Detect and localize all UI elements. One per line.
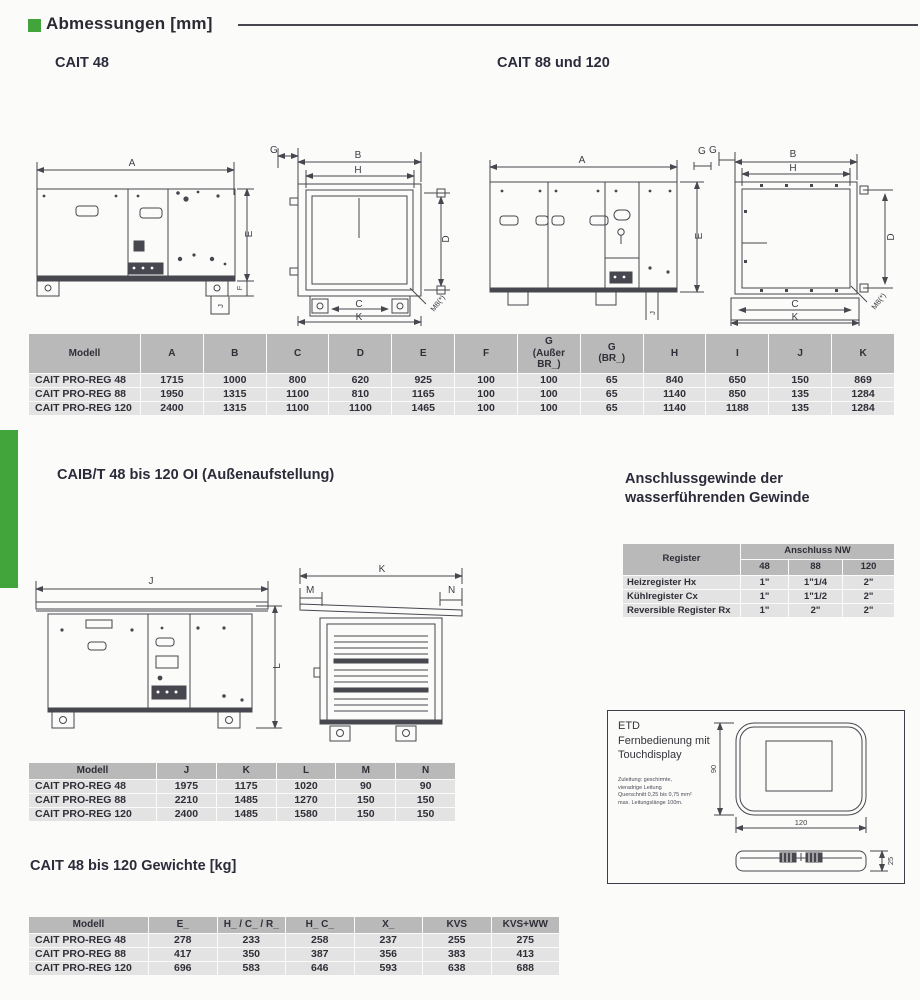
value-cell: 1465 — [392, 401, 455, 415]
value-cell: 2" — [843, 603, 895, 617]
column-header: E_ — [149, 917, 218, 934]
value-cell: 1715 — [141, 373, 204, 387]
gewinde-heading-line1: Anschlussgewinde der — [625, 470, 810, 489]
table-row: Heizregister Hx 1" 1"1/4 2" — [623, 575, 895, 589]
value-cell: 1140 — [643, 387, 706, 401]
value-cell: 1975 — [157, 779, 217, 793]
value-cell: 593 — [354, 961, 423, 975]
value-cell: 1" — [741, 589, 789, 603]
outdoor-dimensions-table: ModellJKLMNCAIT PRO-REG 4819751175102090… — [28, 762, 456, 822]
value-cell: 90 — [336, 779, 396, 793]
value-cell: 237 — [354, 933, 423, 947]
dim-label-m8: M8(*) — [428, 293, 447, 313]
dim-label-c: C — [791, 299, 798, 310]
value-cell: 1188 — [706, 401, 769, 415]
dim-label-m8: M8(*) — [869, 291, 888, 311]
dim-label-a: A — [579, 155, 586, 166]
model-cell: CAIT PRO-REG 88 — [29, 947, 149, 961]
value-cell: 100 — [517, 387, 580, 401]
table-row: CAIT PRO-REG 481975117510209090 — [29, 779, 456, 793]
value-cell: 2400 — [157, 807, 217, 821]
title-rule — [238, 24, 918, 26]
value-cell: 1100 — [266, 401, 329, 415]
value-cell: 100 — [455, 387, 518, 401]
value-cell: 1" — [741, 603, 789, 617]
column-header: E — [392, 334, 455, 374]
table-row: CAIT PRO-REG 481715100080062092510010065… — [29, 373, 895, 387]
table-row: CAIT PRO-REG 881950131511008101165100100… — [29, 387, 895, 401]
table-row: Reversible Register Rx 1" 2" 2" — [623, 603, 895, 617]
dimension-table: ModellABCDEFG (Außer BR_)G (BR_)HIJKCAIT… — [28, 333, 895, 416]
value-cell: 1580 — [276, 807, 336, 821]
model-cell: CAIT PRO-REG 120 — [29, 961, 149, 975]
value-cell: 278 — [149, 933, 218, 947]
etd-box: ETD Fernbedienung mit Touchdisplay Zulei… — [607, 710, 905, 884]
value-cell: 840 — [643, 373, 706, 387]
cait48-side-drawing: A E F J — [28, 143, 258, 325]
dim-label-l: L — [272, 663, 283, 669]
value-cell: 620 — [329, 373, 392, 387]
anschluss-nw-header: Anschluss NW — [741, 544, 895, 560]
section-bullet — [28, 19, 41, 32]
value-cell: 1100 — [329, 401, 392, 415]
column-header: J — [157, 763, 217, 780]
value-cell: 233 — [217, 933, 286, 947]
value-cell: 2400 — [141, 401, 204, 415]
dim-label-j: J — [216, 304, 225, 308]
value-cell: 150 — [396, 807, 456, 821]
value-cell: 2210 — [157, 793, 217, 807]
page-title: Abmessungen [mm] — [46, 14, 213, 34]
model-cell: CAIT PRO-REG 88 — [29, 793, 157, 807]
value-cell: 1284 — [832, 401, 895, 415]
value-cell: 65 — [580, 373, 643, 387]
value-cell: 135 — [769, 387, 832, 401]
column-header: H_ / C_ / R_ — [217, 917, 286, 934]
dim-label-c: C — [355, 299, 362, 310]
model-cell: CAIT PRO-REG 48 — [29, 779, 157, 793]
value-cell: 413 — [491, 947, 560, 961]
caibt-heading: CAIB/T 48 bis 120 OI (Außenaufstellung) — [57, 467, 334, 483]
header-row: ModellE_H_ / C_ / R_H_ C_X_KVSKVS+WW — [29, 917, 560, 934]
sidebar-accent-bar — [0, 430, 18, 588]
value-cell: 1140 — [643, 401, 706, 415]
dim-label-h: H — [789, 163, 796, 174]
value-cell: 1315 — [203, 387, 266, 401]
value-cell: 100 — [455, 373, 518, 387]
value-cell: 65 — [580, 387, 643, 401]
value-cell: 1020 — [276, 779, 336, 793]
table-row: CAIT PRO-REG 88221014851270150150 — [29, 793, 456, 807]
table-row: CAIT PRO-REG 120240013151100110014651001… — [29, 401, 895, 415]
cait88-side-drawing: A G E J — [478, 140, 713, 327]
column-header: Modell — [29, 334, 141, 374]
column-header: KVS — [423, 917, 492, 934]
header-row: ModellJKLMN — [29, 763, 456, 780]
etd-dim-height: 90 — [709, 765, 718, 773]
value-cell: 1485 — [216, 793, 276, 807]
column-header: I — [706, 334, 769, 374]
column-header: KVS+WW — [491, 917, 560, 934]
dim-label-a: A — [129, 158, 136, 169]
value-cell: 688 — [491, 961, 560, 975]
value-cell: 255 — [423, 933, 492, 947]
table-row: CAIT PRO-REG 120696583646593638688 — [29, 961, 560, 975]
value-cell: 1"1/2 — [789, 589, 843, 603]
dim-label-j: J — [149, 576, 154, 587]
value-cell: 100 — [517, 373, 580, 387]
column-header: C — [266, 334, 329, 374]
value-cell: 2" — [789, 603, 843, 617]
dim-label-b: B — [790, 149, 797, 160]
dim-label-e: E — [244, 230, 255, 237]
value-cell: 583 — [217, 961, 286, 975]
size-header-120: 120 — [843, 559, 895, 575]
value-cell: 1"1/4 — [789, 575, 843, 589]
register-label: Kühlregister Cx — [623, 589, 741, 603]
value-cell: 150 — [336, 793, 396, 807]
caibt-side-drawing: J L — [28, 570, 290, 742]
value-cell: 925 — [392, 373, 455, 387]
value-cell: 810 — [329, 387, 392, 401]
value-cell: 90 — [396, 779, 456, 793]
dim-label-g: G — [709, 145, 717, 156]
value-cell: 1270 — [276, 793, 336, 807]
table-row: CAIT PRO-REG 88417350387356383413 — [29, 947, 560, 961]
size-header-48: 48 — [741, 559, 789, 575]
cait88-heading: CAIT 88 und 120 — [497, 55, 610, 71]
table-row: CAIT PRO-REG 120240014851580150150 — [29, 807, 456, 821]
value-cell: 100 — [517, 401, 580, 415]
register-table: Register Anschluss NW 48 88 120 Heizregi… — [622, 543, 895, 618]
value-cell: 850 — [706, 387, 769, 401]
dim-label-e: E — [694, 232, 705, 239]
register-label: Heizregister Hx — [623, 575, 741, 589]
cait88-front-drawing: G B H D C K M8(*) — [705, 140, 905, 327]
value-cell: 150 — [396, 793, 456, 807]
column-header: N — [396, 763, 456, 780]
dim-label-k: K — [792, 312, 799, 323]
cait48-front-drawing: G B H D C K M8(*) — [258, 140, 463, 327]
dim-label-f: F — [235, 285, 244, 290]
etd-drawing: 90 120 25 — [608, 711, 904, 882]
model-cell: CAIT PRO-REG 48 — [29, 933, 149, 947]
dim-label-g: G — [270, 145, 278, 156]
column-header: B — [203, 334, 266, 374]
value-cell: 1100 — [266, 387, 329, 401]
column-header: M — [336, 763, 396, 780]
column-header: G (Außer BR_) — [517, 334, 580, 374]
model-cell: CAIT PRO-REG 120 — [29, 401, 141, 415]
value-cell: 1" — [741, 575, 789, 589]
value-cell: 387 — [286, 947, 355, 961]
column-header: G (BR_) — [580, 334, 643, 374]
value-cell: 65 — [580, 401, 643, 415]
column-header: Modell — [29, 917, 149, 934]
value-cell: 869 — [832, 373, 895, 387]
dim-label-h: H — [354, 165, 361, 176]
table-row: Kühlregister Cx 1" 1"1/2 2" — [623, 589, 895, 603]
value-cell: 258 — [286, 933, 355, 947]
dim-label-d: D — [441, 235, 452, 242]
dim-label-n: N — [448, 585, 455, 596]
dim-label-d: D — [886, 233, 897, 240]
value-cell: 356 — [354, 947, 423, 961]
value-cell: 383 — [423, 947, 492, 961]
register-column-header: Register — [623, 544, 741, 576]
column-header: Modell — [29, 763, 157, 780]
column-header: D — [329, 334, 392, 374]
value-cell: 800 — [266, 373, 329, 387]
gewinde-heading: Anschlussgewinde der wasserführenden Gew… — [625, 470, 810, 508]
value-cell: 2" — [843, 575, 895, 589]
value-cell: 417 — [149, 947, 218, 961]
register-label: Reversible Register Rx — [623, 603, 741, 617]
dim-label-j: J — [648, 311, 657, 315]
column-header: J — [769, 334, 832, 374]
value-cell: 650 — [706, 373, 769, 387]
model-cell: CAIT PRO-REG 48 — [29, 373, 141, 387]
weights-table: ModellE_H_ / C_ / R_H_ C_X_KVSKVS+WWCAIT… — [28, 916, 560, 976]
value-cell: 2" — [843, 589, 895, 603]
column-header: H — [643, 334, 706, 374]
value-cell: 350 — [217, 947, 286, 961]
dim-label-k: K — [356, 312, 363, 323]
column-header: A — [141, 334, 204, 374]
value-cell: 638 — [423, 961, 492, 975]
value-cell: 646 — [286, 961, 355, 975]
gewinde-heading-line2: wasserführenden Gewinde — [625, 489, 810, 508]
value-cell: 1000 — [203, 373, 266, 387]
value-cell: 100 — [455, 401, 518, 415]
cait48-heading: CAIT 48 — [55, 55, 109, 71]
value-cell: 135 — [769, 401, 832, 415]
model-cell: CAIT PRO-REG 88 — [29, 387, 141, 401]
value-cell: 1485 — [216, 807, 276, 821]
value-cell: 1315 — [203, 401, 266, 415]
column-header: K — [832, 334, 895, 374]
value-cell: 150 — [336, 807, 396, 821]
header-row: ModellABCDEFG (Außer BR_)G (BR_)HIJK — [29, 334, 895, 374]
value-cell: 1284 — [832, 387, 895, 401]
gewichte-heading: CAIT 48 bis 120 Gewichte [kg] — [30, 858, 236, 874]
caibt-end-drawing: K M N — [292, 562, 470, 749]
table-row: CAIT PRO-REG 48278233258237255275 — [29, 933, 560, 947]
value-cell: 150 — [769, 373, 832, 387]
value-cell: 1165 — [392, 387, 455, 401]
column-header: H_ C_ — [286, 917, 355, 934]
etd-dim-depth: 25 — [886, 857, 895, 865]
value-cell: 696 — [149, 961, 218, 975]
dim-label-m: M — [306, 585, 314, 596]
value-cell: 1950 — [141, 387, 204, 401]
column-header: K — [216, 763, 276, 780]
column-header: L — [276, 763, 336, 780]
column-header: F — [455, 334, 518, 374]
model-cell: CAIT PRO-REG 120 — [29, 807, 157, 821]
etd-dim-width: 120 — [795, 818, 808, 827]
column-header: X_ — [354, 917, 423, 934]
dim-label-b: B — [355, 150, 362, 161]
value-cell: 1175 — [216, 779, 276, 793]
size-header-88: 88 — [789, 559, 843, 575]
dim-label-k: K — [379, 564, 386, 575]
value-cell: 275 — [491, 933, 560, 947]
